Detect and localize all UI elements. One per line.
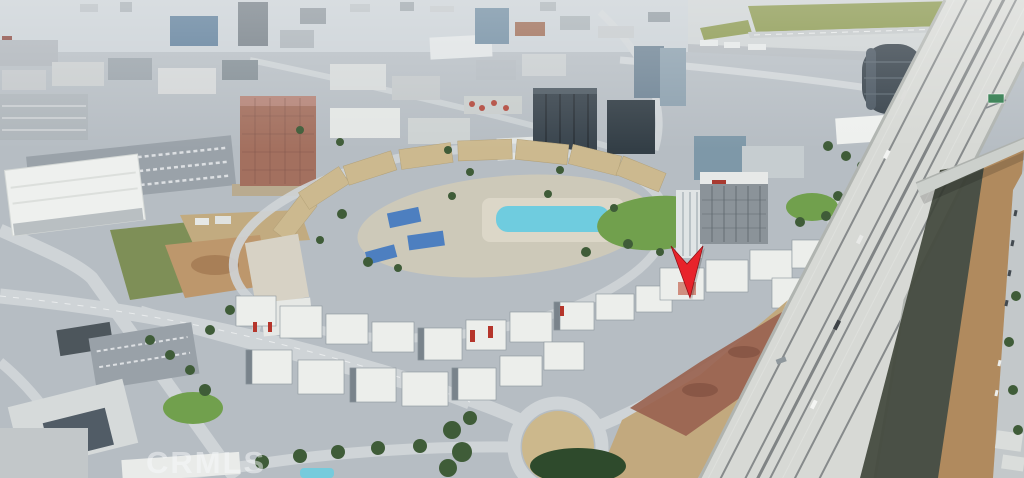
haze-overlay	[0, 0, 1024, 150]
aerial-photo: CRMLS	[0, 0, 1024, 478]
community-pool	[496, 206, 610, 232]
office-lawn	[163, 392, 223, 424]
condo-tower-slab	[700, 172, 768, 244]
